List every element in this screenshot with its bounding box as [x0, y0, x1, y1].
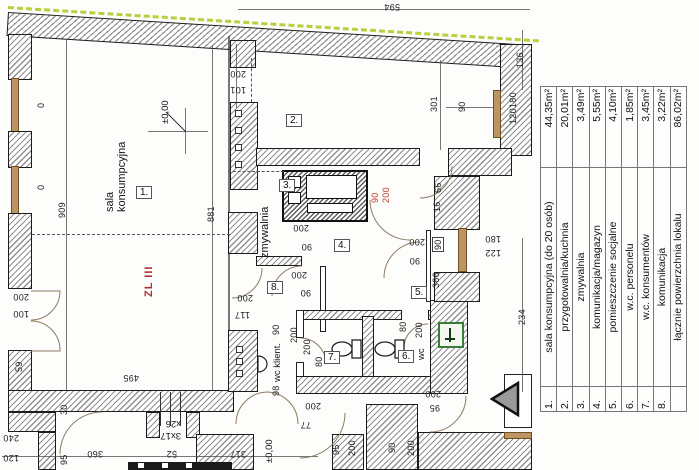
dimension-label: 16	[432, 201, 442, 212]
dimension-label: 180	[485, 234, 501, 244]
dimension-label: 122	[485, 248, 501, 258]
annotation-label: x26	[166, 417, 181, 429]
legend-row: 5.pomieszczenie socjalne4,10m²	[605, 87, 621, 412]
dim-line	[440, 60, 441, 150]
window	[458, 228, 467, 272]
dim-line	[446, 107, 494, 108]
dimension-label: 66	[433, 182, 443, 193]
legend-row-number: 6.	[621, 387, 637, 412]
legend-row: 8.komunikacja3,22m²	[654, 87, 670, 412]
dimension-label: 136	[515, 52, 525, 68]
dimension-label: 120	[3, 453, 19, 463]
wall	[6, 12, 530, 69]
flue-vent	[235, 127, 242, 134]
legend-row-number: 3.	[573, 387, 589, 412]
dimension-label: 200	[406, 440, 416, 456]
room-number: 6.	[398, 350, 414, 363]
dimension-label: 366	[431, 272, 441, 288]
dimension-label: 200	[409, 237, 425, 247]
room-number: 1.	[136, 186, 152, 199]
counter-cut	[128, 462, 232, 470]
legend-room-name: łącznie powierzchnia lokalu	[670, 168, 686, 387]
legend-row: 1.sala konsumpcyjna (do 20 osób)44,35m²	[541, 87, 557, 412]
dimension-label: 101	[230, 85, 246, 95]
legend-room-area: 3,45m²	[638, 87, 654, 168]
legend-room-area: 3,49m²	[573, 87, 589, 168]
dimension-label: 909	[57, 202, 67, 218]
legend-room-name: pomieszczenie socjalne	[605, 168, 621, 387]
dimension-label: 200	[347, 440, 357, 456]
legend-row-number: 1.	[541, 387, 557, 412]
dimension-label: 180	[508, 92, 518, 108]
legend-room-area: 1,85m²	[621, 87, 637, 168]
dimension-label: 100	[13, 309, 29, 319]
dimension-label: 59	[14, 361, 24, 372]
wall	[230, 40, 256, 68]
dimension-label: 90	[409, 256, 420, 266]
room-number: 8.	[267, 281, 283, 294]
room-number: 7.	[324, 351, 340, 364]
legend-room-name: w.c. konsumentów	[638, 168, 654, 387]
dashed-line	[32, 234, 230, 235]
fire-zone-label: ZL III	[143, 266, 155, 297]
wall	[448, 148, 512, 176]
dimension-label: 200	[13, 292, 29, 302]
window	[504, 432, 532, 439]
dimension-label: 90	[370, 192, 380, 203]
legend-row: 4.komunikacja/magazyn5,55m²	[589, 87, 605, 412]
dimension-label: 30	[59, 404, 69, 415]
dimension-label: 80	[314, 356, 324, 367]
dimension-label: 594	[384, 2, 400, 12]
dimension-label: 95	[59, 454, 69, 465]
dimension-label: 90	[271, 324, 281, 335]
stairs	[160, 392, 161, 426]
level-mark	[148, 131, 208, 132]
legend-row: 3.zmywalnia3,49m²	[573, 87, 589, 412]
partition	[504, 374, 532, 428]
floor-plan: 1.sala konsumpcyjna (do 20 osób)44,35m²2…	[0, 0, 699, 470]
wall	[228, 212, 258, 254]
legend-room-name: komunikacja/magazyn	[589, 168, 605, 387]
legend-room-area: 3,22m²	[654, 87, 670, 168]
legend-row: łącznie powierzchnia lokalu86,02m²	[670, 87, 686, 412]
dimension-label: 881	[206, 206, 216, 222]
dimension-label: 200	[293, 223, 309, 233]
dimension-label: 317	[230, 449, 246, 459]
dimension-label: 117	[235, 310, 250, 320]
dimension-label: 98	[271, 385, 281, 396]
dimension-label: 360	[87, 449, 103, 459]
legend-row: 6.w.c. personelu1,85m²	[621, 87, 637, 412]
sink-basin	[306, 175, 357, 199]
window	[11, 78, 19, 133]
dimension-label: 200	[237, 293, 253, 303]
dimension-label: 95	[331, 444, 341, 455]
annotation-label: zmywalnia	[259, 207, 271, 258]
dimension-label: 90	[301, 242, 312, 252]
annotation-label: ±0,00	[264, 439, 276, 463]
dimension-label: 200	[291, 270, 307, 280]
wall	[38, 432, 56, 470]
wall	[8, 131, 32, 168]
dimension-label: 200	[305, 401, 321, 411]
legend-row-number	[670, 387, 686, 412]
electrical-box-icon	[438, 322, 464, 348]
flue-vent	[236, 346, 243, 353]
legend-room-name: w.c. personelu	[621, 168, 637, 387]
wall	[8, 390, 234, 412]
dimension-label: 240	[3, 433, 19, 443]
legend-row-number: 8.	[654, 387, 670, 412]
dimension-label: 495	[123, 373, 139, 383]
dimension-label: 80	[398, 321, 408, 332]
wall	[362, 316, 374, 380]
partition	[320, 266, 326, 332]
flue-vent	[235, 144, 242, 151]
dimension-label: 200	[425, 389, 441, 399]
level-mark	[185, 108, 186, 154]
flue-vent	[236, 370, 243, 377]
dimension-label: 0	[36, 185, 46, 190]
dimension-label: 77	[300, 420, 311, 430]
legend-room-area: 44,35m²	[541, 87, 557, 168]
wall	[296, 310, 402, 320]
dimension-label: 52	[166, 449, 177, 459]
dimension-label: 120	[508, 108, 518, 124]
window	[493, 90, 501, 138]
sink-basin	[288, 192, 301, 204]
dimension-label: 90	[300, 288, 311, 298]
annotation-label: sala konsumpcyjna	[104, 142, 128, 212]
legend-row: 7.w.c. konsumentów3,45m²	[638, 87, 654, 412]
legend-room-area: 86,02m²	[670, 87, 686, 168]
flue-vent	[236, 358, 243, 365]
dimension-label: 301	[429, 96, 439, 112]
dimension-label: 200	[414, 322, 424, 338]
wall	[256, 148, 420, 166]
legend-room-name: komunikacja	[654, 168, 670, 387]
legend-row-number: 7.	[638, 387, 654, 412]
dimension-label: 90	[387, 442, 397, 453]
room-number: 3.	[279, 179, 295, 192]
legend-room-name: sala konsumpcyjna (do 20 osób)	[541, 168, 557, 387]
legend-table: 1.sala konsumpcyjna (do 20 osób)44,35m²2…	[540, 87, 695, 412]
legend-room-area: 5,55m²	[589, 87, 605, 168]
wall	[366, 404, 418, 470]
sink-icon	[258, 356, 267, 372]
dimension-label: 90	[457, 101, 467, 112]
dimension-label: 0	[36, 103, 46, 108]
dimension-label: 95	[429, 403, 440, 413]
sink-drainer	[307, 203, 353, 213]
window	[11, 166, 19, 215]
dashed-opening	[251, 58, 252, 102]
wall	[8, 213, 32, 289]
legend-row-number: 5.	[605, 387, 621, 412]
wall	[8, 34, 32, 80]
dashed-line	[228, 171, 284, 172]
annotation-label: wc klient.	[272, 343, 284, 382]
wall	[8, 412, 56, 432]
legend-row-number: 2.	[557, 387, 573, 412]
dimension-label: 200	[381, 187, 391, 203]
wall	[296, 376, 434, 394]
legend-row-number: 4.	[589, 387, 605, 412]
dimension-label: 200	[289, 327, 299, 343]
room-number: 2.	[286, 114, 302, 127]
room-number: 5.	[411, 286, 427, 299]
flue-vent	[235, 161, 242, 168]
wall	[146, 412, 160, 438]
room-number: 4.	[334, 239, 350, 252]
dimension-label: 90	[432, 237, 444, 252]
legend-room-name: przygotowalnia/kuchnia	[557, 168, 573, 387]
annotation-label: wc	[416, 348, 428, 360]
annotation-label: 3x17	[160, 429, 181, 441]
legend-room-area: 20,01m²	[557, 87, 573, 168]
flue-vent	[235, 110, 242, 117]
legend-room-area: 4,10m²	[605, 87, 621, 168]
dimension-label: 200	[230, 69, 246, 79]
chimney-wall	[228, 330, 258, 392]
annotation-label: ±0,00	[160, 100, 172, 124]
legend-row: 2.przygotowalnia/kuchnia20,01m²	[557, 87, 573, 412]
dimension-label: 234	[517, 309, 527, 325]
legend-room-name: zmywalnia	[573, 168, 589, 387]
dimension-label: 200	[302, 339, 312, 355]
